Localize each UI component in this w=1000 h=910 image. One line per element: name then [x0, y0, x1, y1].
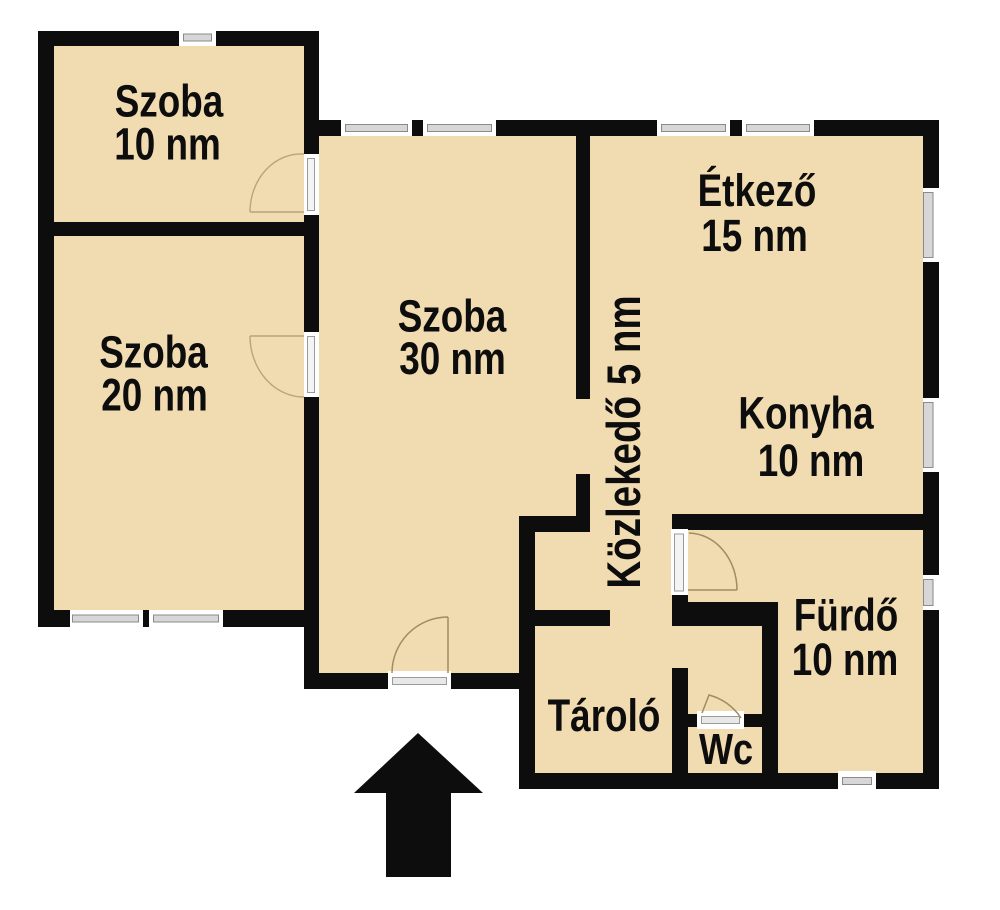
svg-text:10 nm: 10 nm	[758, 436, 865, 486]
svg-text:Fürdő: Fürdő	[794, 590, 898, 640]
svg-text:10 nm: 10 nm	[792, 635, 899, 685]
svg-text:Wc: Wc	[699, 725, 753, 774]
svg-text:Konyha: Konyha	[738, 388, 874, 438]
svg-text:Étkező: Étkező	[698, 166, 817, 216]
svg-text:15 nm: 15 nm	[701, 211, 808, 261]
svg-text:20 nm: 20 nm	[101, 370, 208, 420]
svg-text:30 nm: 30 nm	[399, 334, 506, 384]
svg-text:Tároló: Tároló	[548, 691, 661, 741]
svg-text:10 nm: 10 nm	[114, 119, 221, 169]
svg-text:Közlekedő 5 nm: Közlekedő 5 nm	[598, 295, 650, 588]
